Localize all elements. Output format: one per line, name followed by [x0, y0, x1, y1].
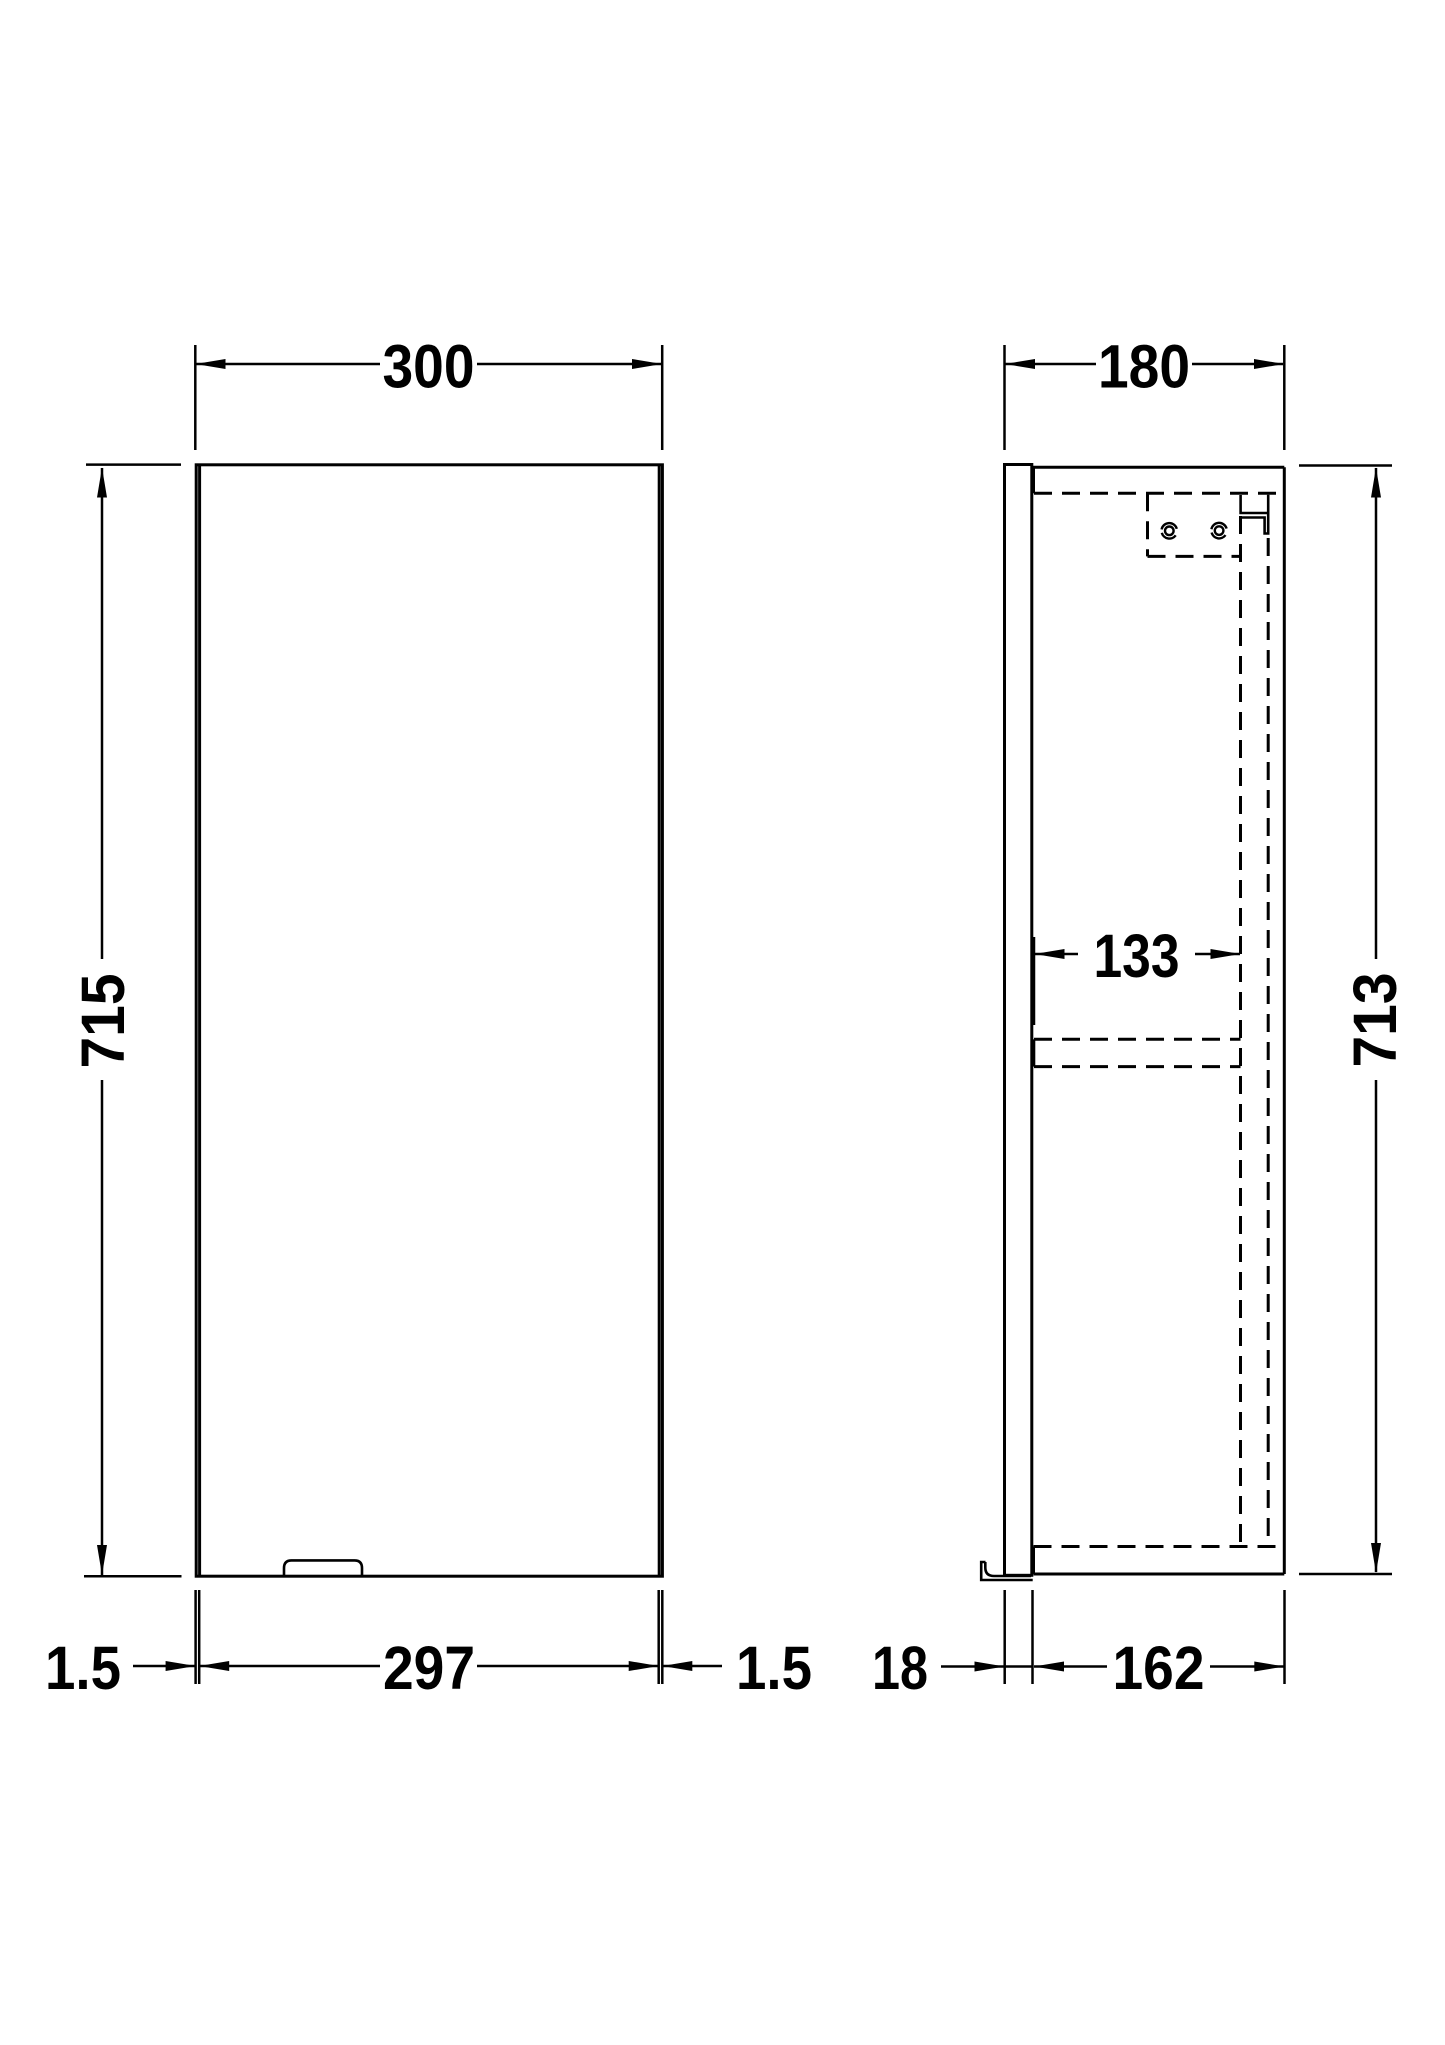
svg-text:297: 297 [383, 1634, 475, 1702]
svg-text:133: 133 [1094, 922, 1180, 990]
svg-text:715: 715 [69, 974, 137, 1069]
svg-text:162: 162 [1113, 1634, 1205, 1702]
svg-text:300: 300 [383, 333, 475, 401]
svg-text:1.5: 1.5 [45, 1634, 121, 1702]
svg-text:18: 18 [872, 1634, 928, 1702]
svg-text:1.5: 1.5 [736, 1634, 812, 1702]
svg-text:180: 180 [1098, 333, 1190, 401]
svg-text:713: 713 [1341, 973, 1409, 1068]
